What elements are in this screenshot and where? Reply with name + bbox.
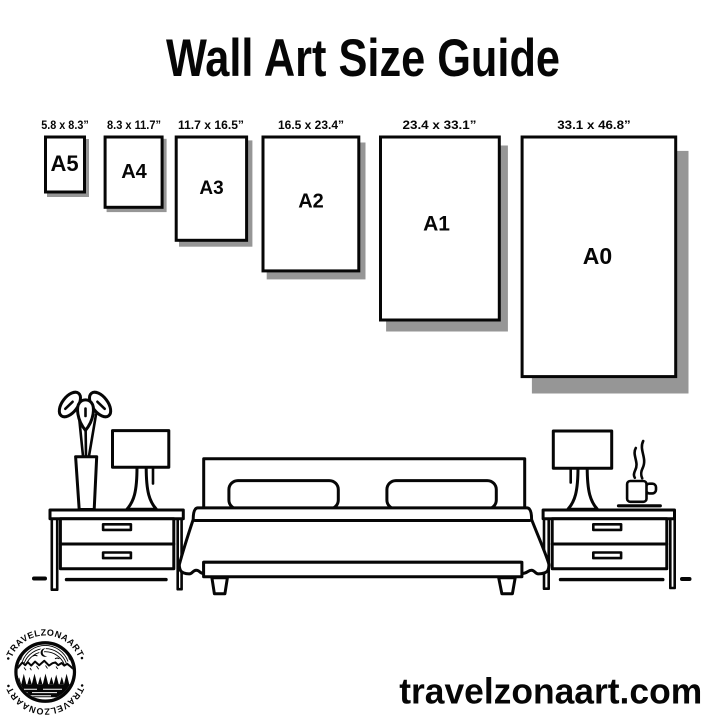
svg-text:8.3 x 11.7”: 8.3 x 11.7” [107, 119, 161, 132]
svg-text:23.4 x 33.1”: 23.4 x 33.1” [403, 119, 477, 132]
svg-text:A5: A5 [51, 151, 79, 176]
svg-text:travelzonaart.com: travelzonaart.com [399, 671, 702, 712]
svg-text:5.8 x 8.3”: 5.8 x 8.3” [41, 119, 89, 132]
svg-text:A1: A1 [423, 213, 450, 236]
svg-text:11.7 x 16.5”: 11.7 x 16.5” [178, 119, 244, 132]
svg-text:A3: A3 [199, 178, 223, 199]
svg-text:33.1 x 46.8”: 33.1 x 46.8” [557, 119, 631, 132]
svg-text:A4: A4 [121, 161, 147, 183]
svg-text:16.5 x 23.4”: 16.5 x 23.4” [278, 119, 344, 132]
svg-text:A0: A0 [583, 243, 612, 269]
svg-text:A2: A2 [298, 191, 324, 213]
svg-text:Wall Art Size Guide: Wall Art Size Guide [166, 29, 560, 88]
